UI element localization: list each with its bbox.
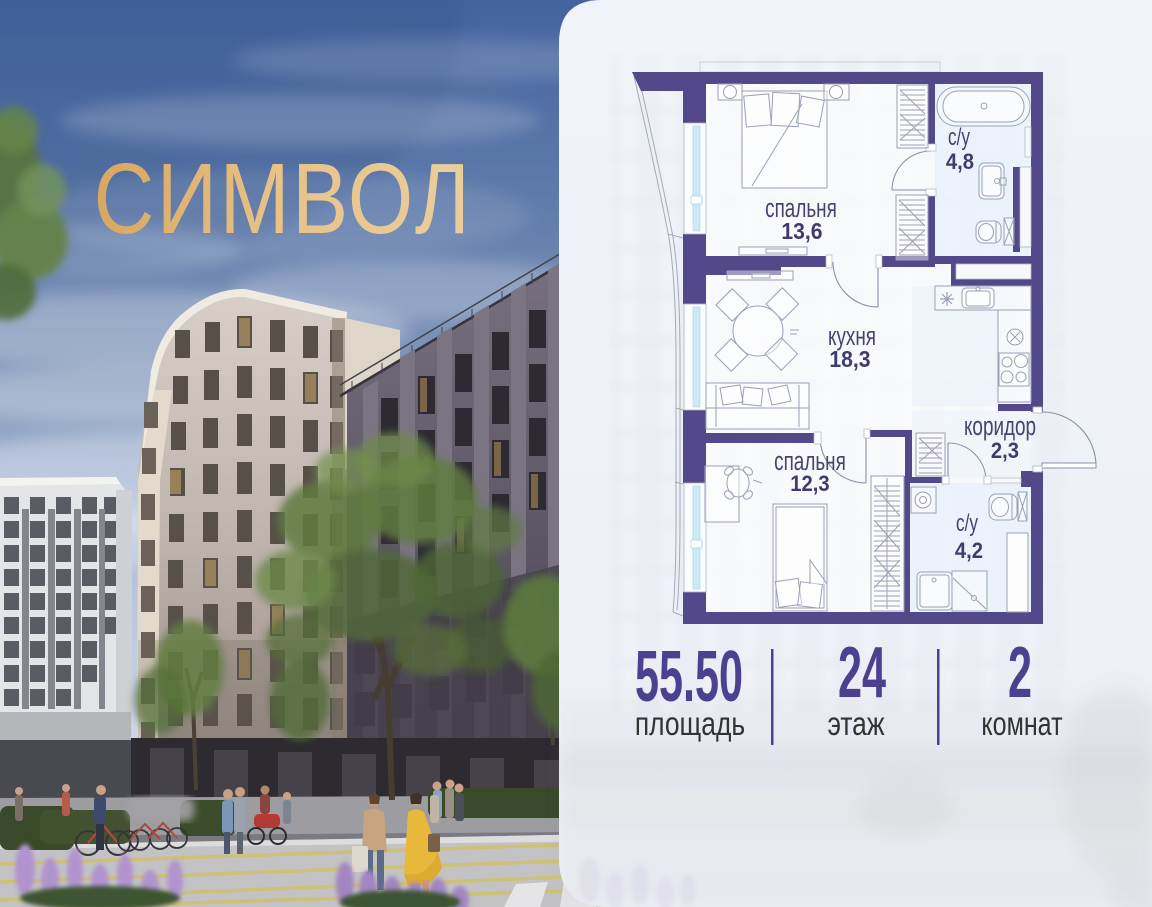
svg-text:12,3: 12,3 [790, 472, 829, 496]
svg-text:СИМВОЛ: СИМВОЛ [94, 142, 473, 255]
svg-text:этаж: этаж [827, 706, 884, 742]
svg-text:площадь: площадь [635, 706, 745, 742]
svg-text:55.50: 55.50 [635, 636, 743, 717]
svg-text:13,6: 13,6 [781, 218, 822, 244]
svg-text:4,8: 4,8 [946, 150, 974, 174]
svg-text:24: 24 [838, 632, 886, 713]
svg-text:2: 2 [1008, 632, 1032, 713]
svg-text:спальня: спальня [774, 446, 846, 476]
svg-text:комнат: комнат [981, 706, 1062, 743]
svg-text:4,2: 4,2 [955, 539, 983, 563]
svg-text:коридор: коридор [964, 411, 1036, 441]
svg-text:2,3: 2,3 [991, 439, 1019, 463]
svg-text:18,3: 18,3 [829, 346, 870, 372]
svg-text:с/у: с/у [948, 124, 971, 150]
svg-text:с/у: с/у [956, 510, 979, 536]
